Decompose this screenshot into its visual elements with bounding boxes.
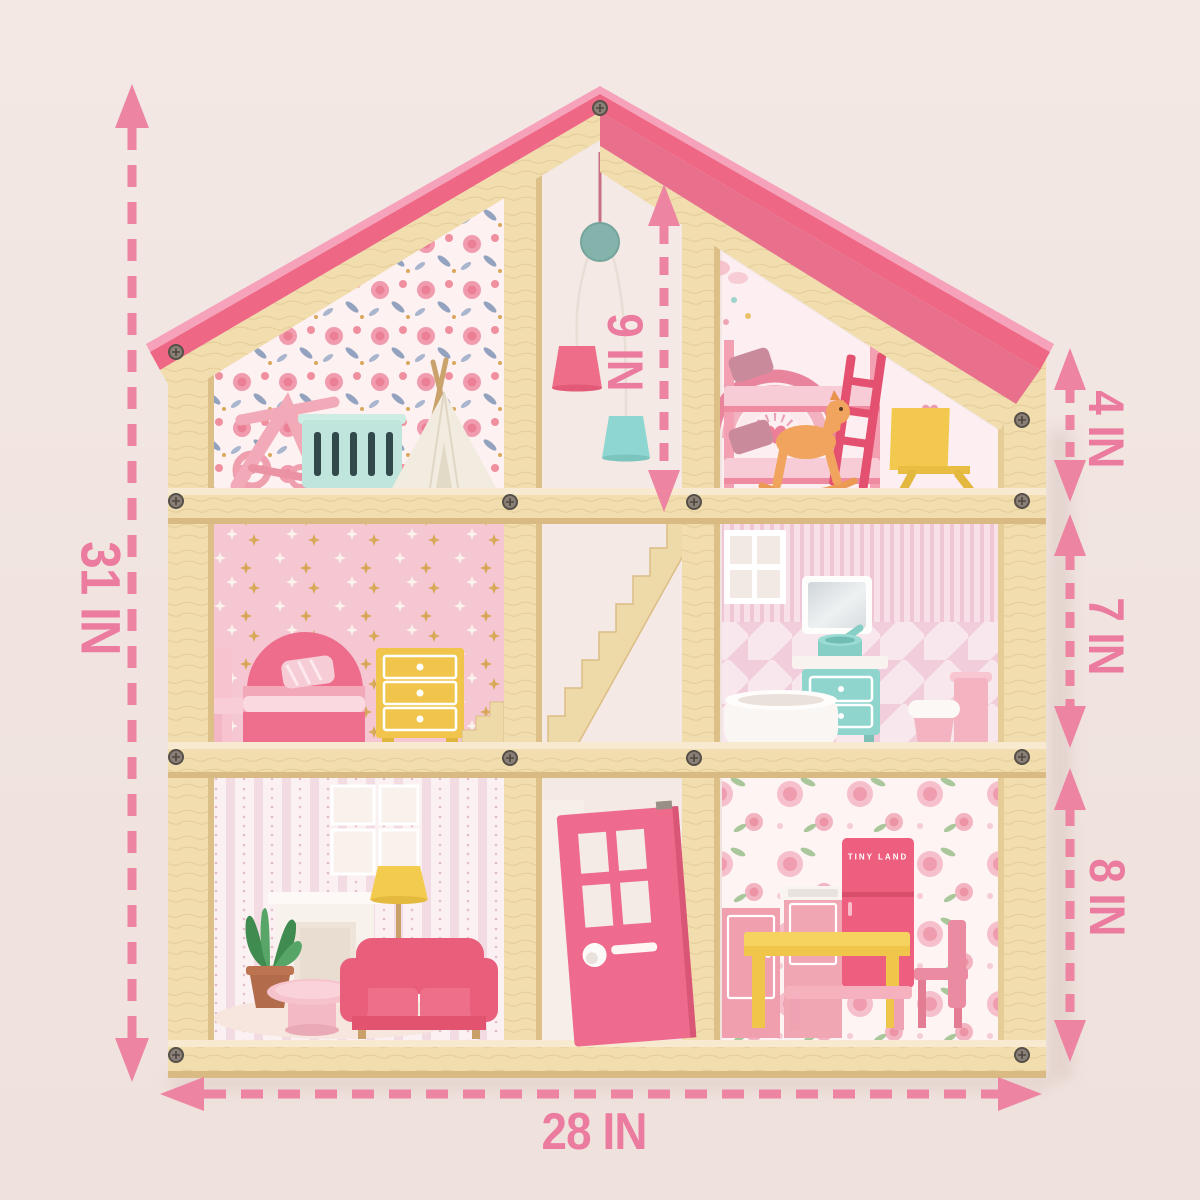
bedroom (208, 524, 504, 744)
dresser (376, 648, 464, 744)
door-window (578, 832, 609, 874)
door-hinge (656, 800, 673, 809)
living-room (214, 778, 504, 1040)
frame-post-left (168, 344, 214, 1076)
base-beam (168, 1040, 1046, 1078)
bathroom-window (724, 530, 786, 604)
dimension-label-ground-floor: 8 IN (1078, 858, 1136, 935)
door-window (616, 829, 647, 871)
dimension-label-attic-interior: 9 IN (596, 313, 654, 390)
kitchen (722, 778, 998, 1040)
bathtub (724, 690, 838, 746)
pendant-lamp-pink (552, 346, 602, 392)
front-door (556, 800, 696, 1047)
frame-post-right (998, 344, 1046, 1076)
kitchen-cabinet (722, 908, 780, 1038)
door-window (620, 881, 651, 925)
product-dimension-image: 31 IN 28 IN 9 IN 4 IN 7 IN 8 IN TINY LAN… (0, 0, 1200, 1200)
picture-frames (332, 786, 418, 874)
door-window (582, 884, 613, 928)
sofa (340, 938, 498, 1039)
crib (298, 414, 406, 488)
dimension-label-middle-floor: 7 IN (1077, 597, 1135, 674)
attic-floor-beam (168, 488, 1046, 524)
kitchen-sink (780, 886, 846, 1038)
dimension-label-overall-height: 31 IN (69, 541, 134, 654)
pendant-lamp-teal (602, 416, 650, 462)
bathroom (722, 524, 998, 746)
fridge-brand-logo: TINY LAND (848, 853, 909, 862)
middle-floor-beam (168, 742, 1046, 778)
dollhouse-scene (0, 0, 1200, 1200)
dimension-label-attic-wall: 4 IN (1077, 390, 1135, 467)
dimension-label-overall-width: 28 IN (542, 1102, 647, 1162)
